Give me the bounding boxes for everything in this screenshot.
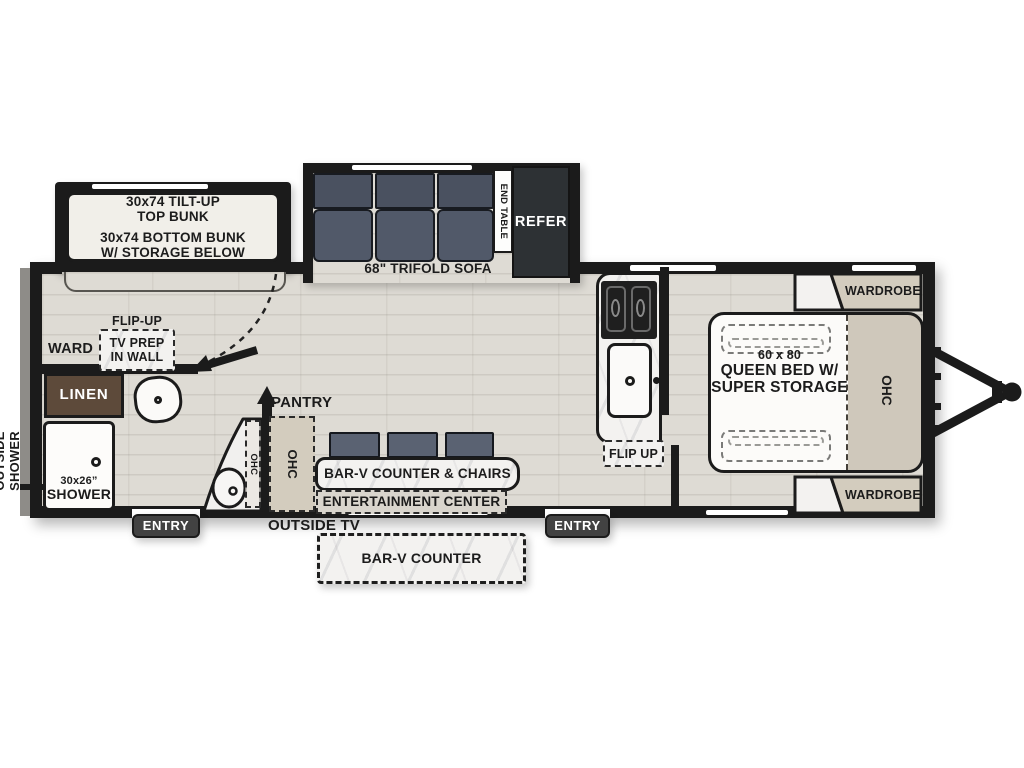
queen-bed: 60 x 80 QUEEN BED W/ SUPER STORAGE OHC [708, 312, 924, 473]
outside-tv-label: OUTSIDE TV [268, 518, 360, 535]
bar-chair [445, 432, 494, 458]
linen-label: LINEN [60, 387, 109, 404]
bar-v-counter: BAR-V COUNTER & CHAIRS [315, 457, 520, 491]
window-top-galley [630, 265, 716, 271]
pantry-ohc: OHC [269, 416, 315, 512]
window-bottom-bedroom [706, 510, 788, 515]
kitchen-faucet [653, 377, 660, 384]
wall-left [30, 262, 42, 518]
window-top-bedroom [852, 265, 916, 271]
bed-pillow-fold [728, 338, 824, 348]
wardrobe-bottom-label: WARDROBE [845, 486, 921, 504]
bed-ohc: OHC [863, 371, 909, 411]
bar-v-counter-label: BAR-V COUNTER & CHAIRS [324, 466, 511, 481]
shower-pan: 30x26” SHOWER [43, 421, 115, 511]
stove-burner-ring [611, 299, 620, 317]
wall-top-seg2 [286, 262, 305, 274]
bar-chair [387, 432, 438, 458]
tv-prep-cabinet: TV PREPIN WALL [99, 329, 175, 371]
outside-shower-label: OUTSIDESHOWER [0, 405, 27, 517]
shower-text-label: SHOWER [46, 487, 112, 503]
outside-bar-v-counter-label: BAR-V COUNTER [361, 551, 481, 567]
stove-burner-ring [636, 299, 645, 317]
hitch-ball [1003, 383, 1022, 402]
outside-bar-v-counter: BAR-V COUNTER [317, 533, 526, 584]
kitchen-sink-drain [625, 376, 635, 386]
kitchen-island [596, 272, 662, 444]
pantry-ohc-label: OHC [285, 449, 300, 479]
entry-tab-right: ENTRY [545, 514, 610, 538]
pantry-label: PANTRY [271, 395, 332, 412]
bed-pillow-fold [728, 436, 824, 446]
stove-burner [606, 286, 626, 332]
floorplan-canvas: 30x74 TILT-UPTOP BUNK 30x74 BOTTOM BUNKW… [0, 0, 1024, 768]
entry-tab-left: ENTRY [132, 514, 200, 538]
wardrobe-top-label: WARDROBE [845, 282, 921, 300]
kitchen-sink [607, 343, 652, 418]
bed-pillow-bottom [721, 430, 831, 462]
stove [601, 281, 657, 339]
shower-drain [91, 457, 101, 467]
bar-chair [329, 432, 380, 458]
entry-left-label: ENTRY [143, 519, 190, 534]
shower-label: 30x26” SHOWER [46, 475, 112, 503]
kitchen-flip-up-label: FLIP UP [609, 447, 658, 461]
bed-label: 60 x 80 QUEEN BED W/ SUPER STORAGE [711, 348, 848, 397]
kitchen-flip-up: FLIP UP [603, 440, 664, 467]
ward-label: WARD [48, 341, 93, 357]
hitch-coupler [992, 381, 1002, 403]
linen-cabinet: LINEN [44, 373, 124, 418]
bed-ohc-label: OHC [878, 376, 893, 407]
toilet-flush [154, 396, 163, 405]
flip-up-label: FLIP-UP [95, 314, 179, 328]
vanity-ohc-label: OHC [248, 453, 259, 475]
wall-top-seg1 [30, 262, 62, 274]
vanity-ohc: OHC [245, 420, 261, 508]
entertainment-center: ENTERTAINMENT CENTER [316, 490, 507, 514]
tv-prep-label: TV PREPIN WALL [110, 336, 165, 364]
stove-burner [631, 286, 651, 332]
bed-size-label: 60 x 80 [711, 348, 848, 362]
entertainment-center-label: ENTERTAINMENT CENTER [323, 494, 501, 509]
entry-right-label: ENTRY [554, 519, 601, 534]
wall-bedroom-stub [671, 445, 679, 506]
wall-right [923, 262, 935, 518]
